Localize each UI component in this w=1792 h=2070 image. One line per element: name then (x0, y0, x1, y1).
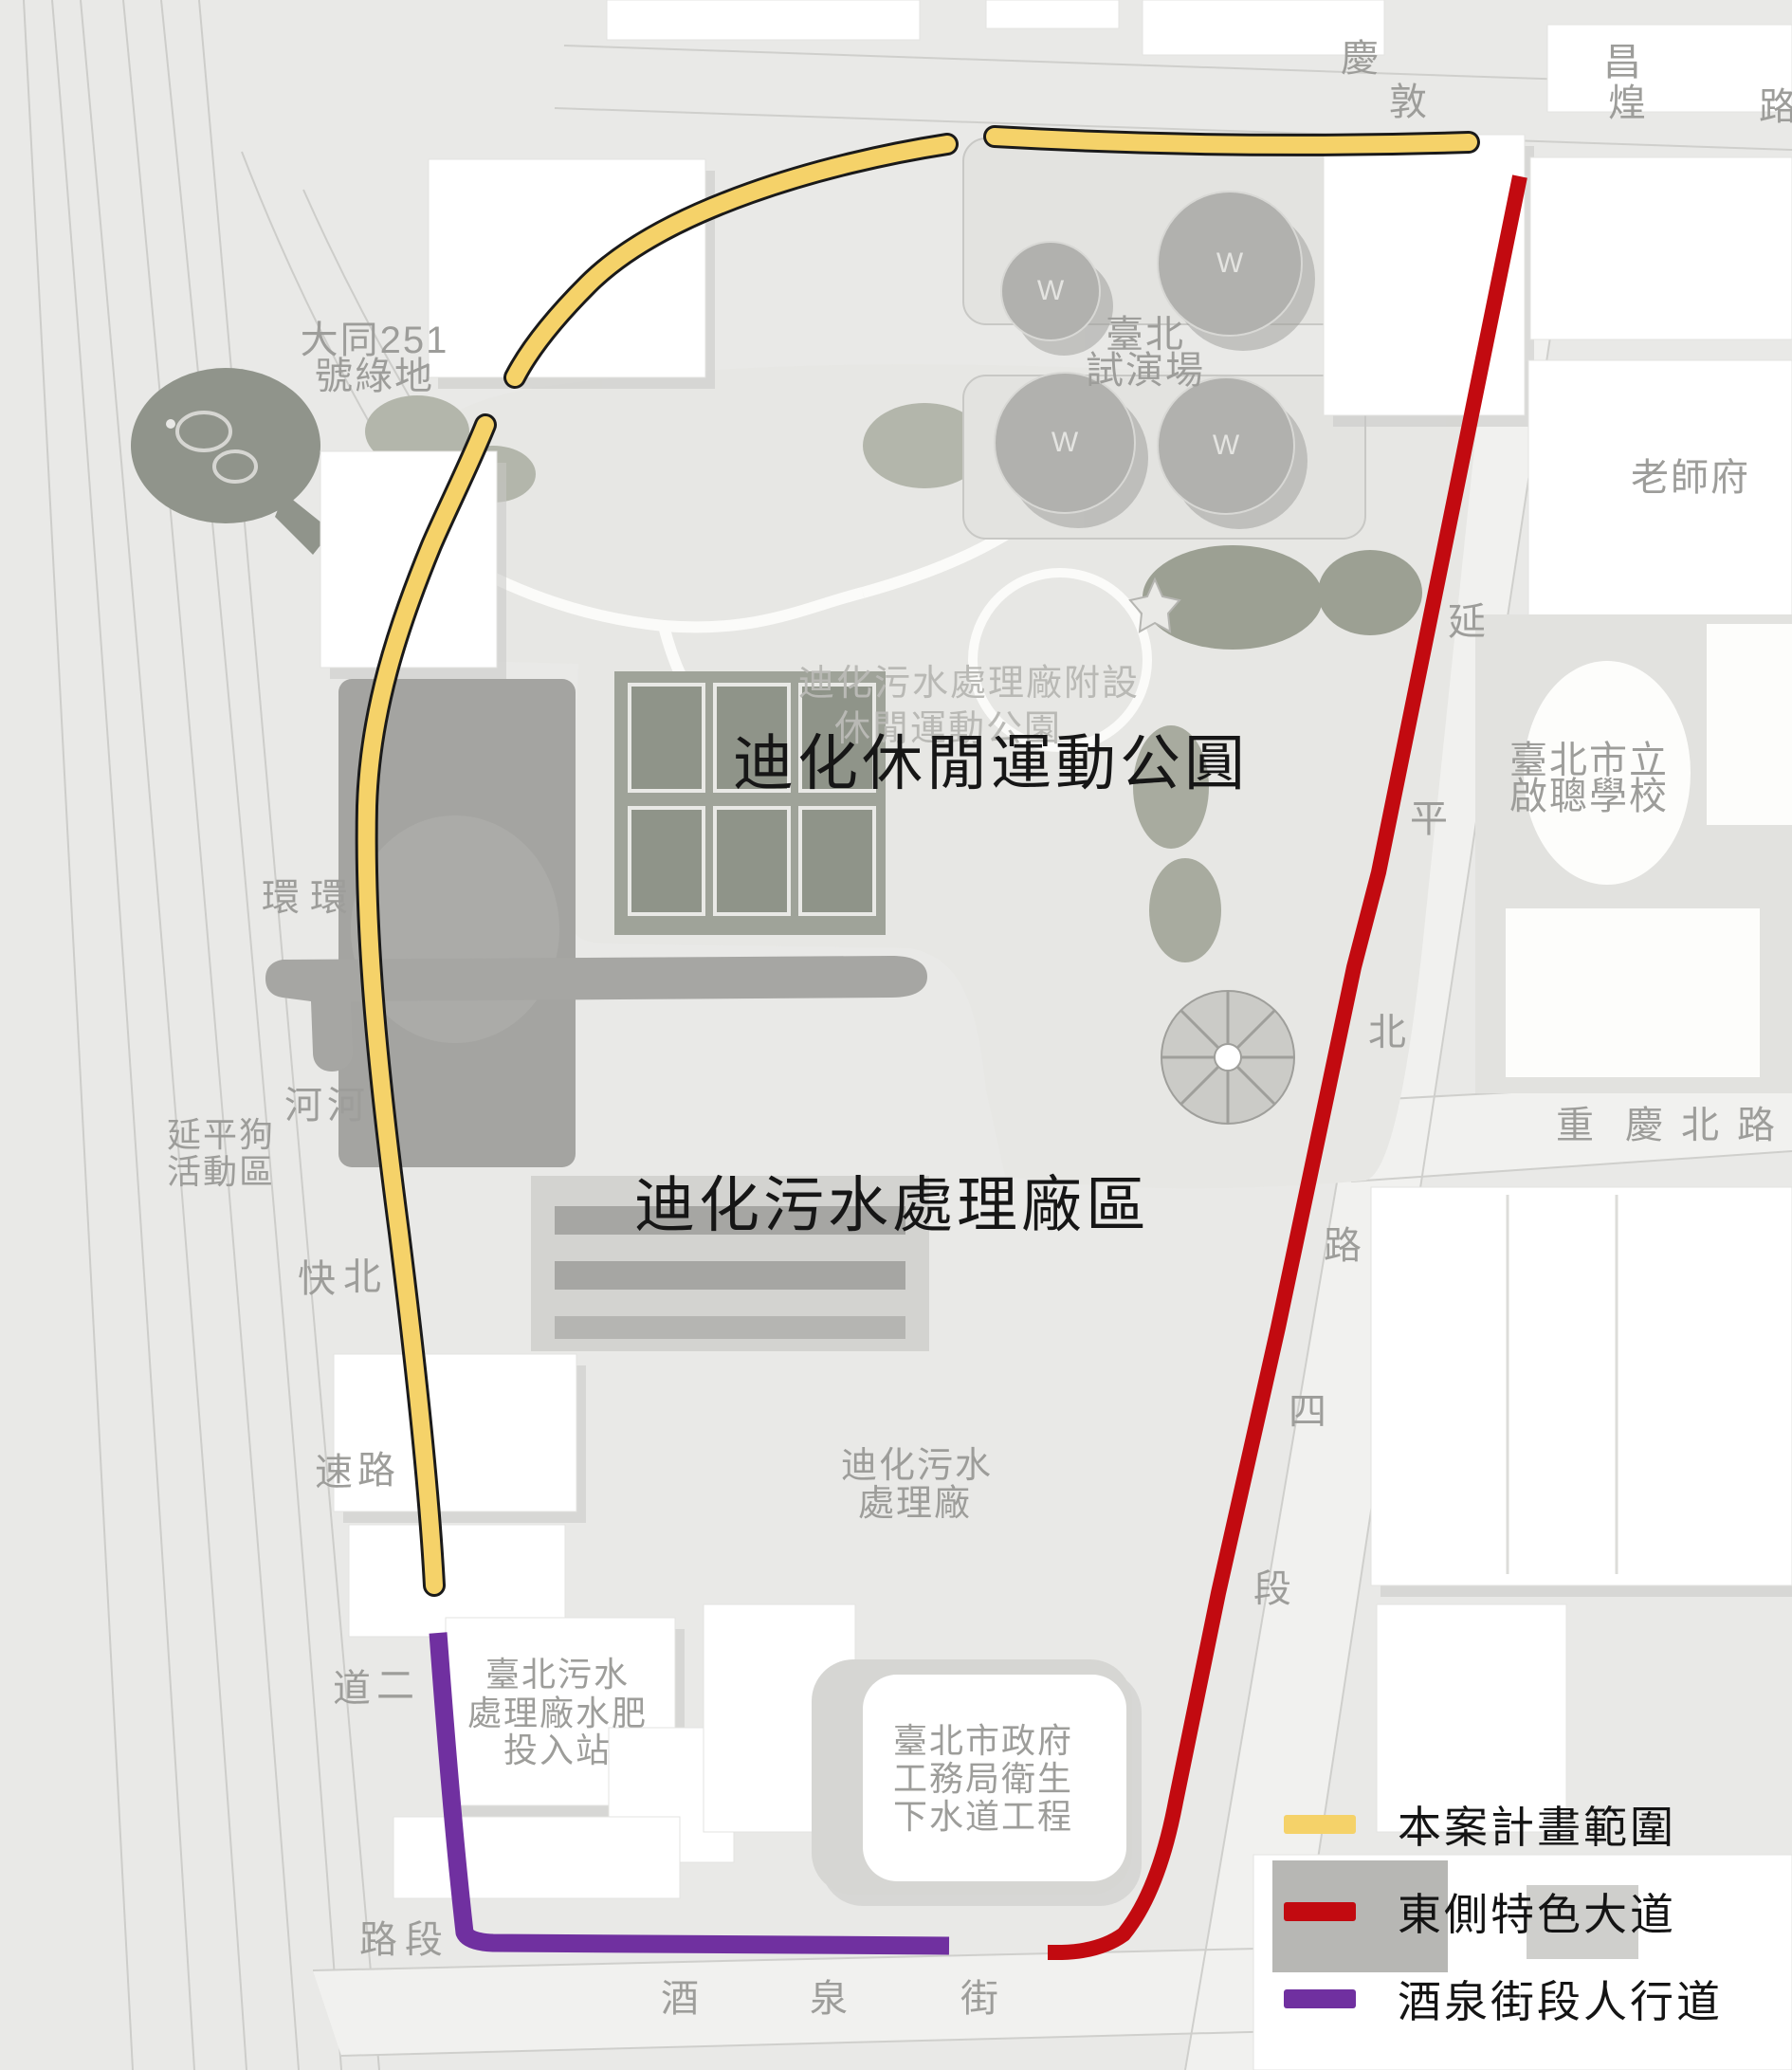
tank-w-mark: W (1216, 247, 1243, 280)
street-expressway-char: 速 (315, 1453, 355, 1493)
street-expressway-char: 快 (298, 1259, 338, 1299)
street-yanping-char: 延 (1448, 602, 1488, 642)
street-yanping-char: 四 (1289, 1392, 1328, 1432)
street-expressway-char: 道 (333, 1669, 373, 1709)
site-plan-map: 迪化污水處理廠附設 休閒運動公園 迪化休閒運動公圓 迪化污水處理廠區 大同251… (0, 0, 1792, 2070)
dog-area-label-line2: 活動區 (167, 1154, 275, 1190)
test-site-label-line1: 臺北 (1106, 315, 1185, 355)
sludge-label-line3: 投入站 (503, 1732, 612, 1768)
school-label-line1: 臺北市立 (1509, 741, 1669, 780)
spoke-plaza (1161, 991, 1294, 1124)
tank-w-mark: W (1051, 427, 1078, 459)
street-jiuquan-char: 酒 (661, 1979, 701, 2019)
legend: 本案計畫範圍 東側特色大道 酒泉街段人行道 (1282, 1781, 1723, 2043)
east-blocks (1371, 1187, 1792, 1585)
legend-label: 酒泉街段人行道 (1398, 1968, 1723, 2030)
street-top-row1-char: 慶 (1341, 39, 1381, 79)
sewerage-office-label-line2: 工務局衛生 (893, 1761, 1073, 1797)
school-grounds (1475, 614, 1792, 1093)
plant-title: 迪化污水處理廠區 (634, 1157, 1150, 1244)
park-subtitle-line1: 迪化污水處理廠附設 (798, 666, 1140, 704)
jiuquan-walk-swatch (1282, 1988, 1358, 2010)
street-huanhe-north-char: 北 (343, 1257, 383, 1297)
plan-route-swatch (1282, 1813, 1358, 1836)
street-top-row2-char: 煌 (1608, 83, 1648, 123)
legend-label: 本案計畫範圍 (1398, 1793, 1676, 1856)
green-space-label-line2: 號綠地 (315, 357, 434, 396)
legend-label: 東側特色大道 (1398, 1880, 1676, 1943)
street-expressway-char: 河 (284, 1086, 324, 1126)
sludge-label-line2: 處理廠水肥 (467, 1695, 648, 1731)
street-chongqing-char: 重 (1556, 1106, 1596, 1145)
sludge-label-line1: 臺北污水 (485, 1657, 630, 1693)
street-yanping-char: 段 (1253, 1569, 1293, 1609)
street-huanhe-north-char: 河 (327, 1086, 367, 1126)
dog-area-label-line1: 延平狗 (167, 1117, 275, 1153)
sewerage-office-label-line3: 下水道工程 (893, 1799, 1073, 1835)
street-chongqing-char: 路 (1737, 1106, 1777, 1145)
street-huanhe-north-char: 路 (357, 1451, 397, 1491)
street-top-row1-char: 昌 (1603, 43, 1643, 82)
tank-w-mark: W (1037, 275, 1064, 307)
teacher-house-label: 老師府 (1631, 458, 1750, 498)
street-chongqing-char: 北 (1681, 1106, 1721, 1145)
street-top-row2-char: 路 (1759, 87, 1792, 127)
street-huanhe-north-char: 二 (376, 1666, 416, 1706)
sewerage-office-label-line1: 臺北市政府 (893, 1723, 1073, 1759)
street-chongqing-char: 慶 (1625, 1106, 1665, 1145)
street-yanping-char: 北 (1368, 1013, 1408, 1053)
legend-item-east-avenue: 東側特色大道 (1282, 1868, 1723, 1955)
street-jiuquan-char: 泉 (810, 1979, 850, 2019)
plant-office-label-line1: 迪化污水 (841, 1448, 993, 1486)
tank-w-mark: W (1213, 430, 1239, 462)
street-yanping-char: 平 (1410, 799, 1450, 839)
park-title: 迪化休閒運動公圓 (733, 715, 1249, 802)
street-jiuquan-char: 街 (960, 1979, 1000, 2019)
legend-item-plan-route: 本案計畫範圍 (1282, 1781, 1723, 1868)
legend-item-jiuquan-walk: 酒泉街段人行道 (1282, 1955, 1723, 2043)
green-space-label-line1: 大同251 (301, 321, 449, 360)
plant-office-label-line2: 處理廠 (858, 1486, 972, 1524)
street-expressway-char: 路 (359, 1920, 399, 1960)
school-label-line2: 啟聰學校 (1509, 777, 1669, 816)
street-expressway-char: 環 (262, 878, 302, 918)
teacher-house-block (1528, 360, 1792, 656)
street-top-row2-char: 敦 (1389, 82, 1429, 122)
street-yanping-char: 路 (1324, 1226, 1363, 1266)
test-site-label-line2: 試演場 (1086, 351, 1205, 391)
street-huanhe-north-char: 環 (310, 878, 350, 918)
east-avenue-swatch (1282, 1900, 1358, 1923)
street-huanhe-north-char: 段 (405, 1920, 445, 1960)
